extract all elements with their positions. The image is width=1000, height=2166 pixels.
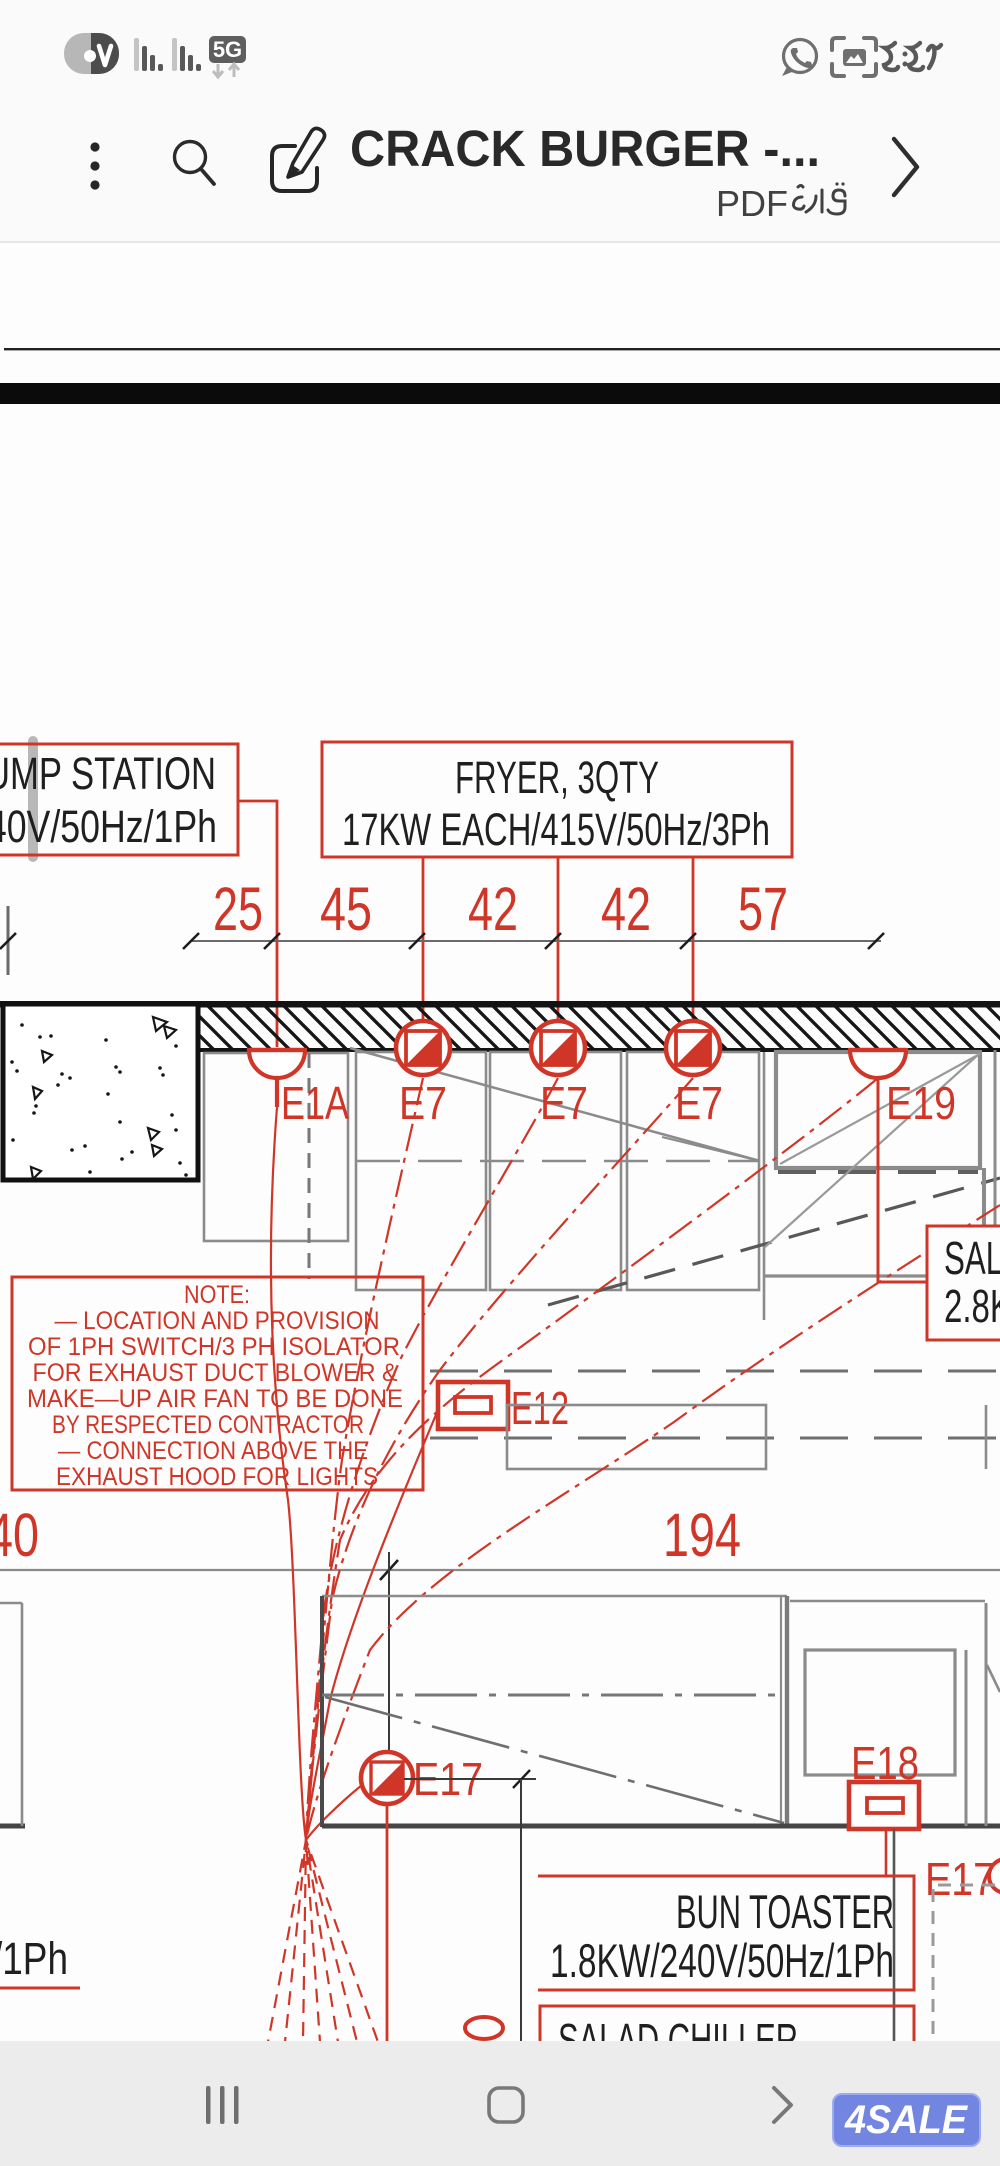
svg-text:NOTE:: NOTE:: [184, 1281, 250, 1309]
svg-text:E19: E19: [886, 1077, 956, 1129]
svg-text:FRYER, 3QTY: FRYER, 3QTY: [455, 752, 659, 803]
svg-text:57: 57: [738, 875, 788, 943]
svg-text:— CONNECTION ABOVE THE: — CONNECTION ABOVE THE: [58, 1437, 368, 1465]
svg-text:SALA: SALA: [944, 1232, 1000, 1284]
svg-text:E7: E7: [399, 1077, 447, 1129]
svg-text:/1Ph: /1Ph: [0, 1933, 68, 1984]
svg-text:E1A: E1A: [281, 1077, 349, 1129]
svg-text:E17: E17: [925, 1853, 995, 1905]
svg-text:42: 42: [468, 875, 518, 943]
svg-text:1.8KW/240V/50Hz/1Ph: 1.8KW/240V/50Hz/1Ph: [550, 1934, 894, 1987]
svg-text:CRACK BURGER -...: CRACK BURGER -...: [350, 120, 820, 177]
svg-text:— LOCATION AND PROVISION: — LOCATION AND PROVISION: [55, 1307, 380, 1335]
svg-text:2.8KV: 2.8KV: [944, 1280, 1000, 1332]
svg-text:17KW EACH/415V/50Hz/3Ph: 17KW EACH/415V/50Hz/3Ph: [342, 804, 770, 855]
svg-text:EXHAUST HOOD FOR LIGHTS: EXHAUST HOOD FOR LIGHTS: [56, 1463, 378, 1491]
svg-text:BY RESPECTED CONTRACTOR: BY RESPECTED CONTRACTOR: [52, 1411, 364, 1439]
svg-text:25: 25: [213, 875, 263, 943]
svg-text:40: 40: [0, 1501, 39, 1569]
svg-text:PDF: PDF: [716, 183, 788, 224]
svg-text:45: 45: [320, 875, 372, 943]
svg-text:4SALE: 4SALE: [844, 2098, 968, 2142]
svg-text:MAKE—UP AIR FAN TO BE DONE: MAKE—UP AIR FAN TO BE DONE: [27, 1385, 403, 1413]
svg-text:42: 42: [601, 875, 651, 943]
svg-text:240V/50Hz/1Ph: 240V/50Hz/1Ph: [0, 801, 217, 852]
svg-text:194: 194: [663, 1501, 741, 1569]
svg-text:E12: E12: [511, 1382, 569, 1434]
svg-text:OF 1PH SWITCH/3 PH ISOLATOR: OF 1PH SWITCH/3 PH ISOLATOR: [28, 1333, 400, 1361]
svg-text:5G: 5G: [213, 37, 242, 62]
svg-text:E18: E18: [851, 1737, 919, 1789]
svg-text:DUMP STATION: DUMP STATION: [0, 748, 216, 799]
svg-text:E7: E7: [540, 1077, 588, 1129]
svg-text:FOR EXHAUST DUCT BLOWER &: FOR EXHAUST DUCT BLOWER &: [33, 1359, 398, 1387]
svg-text:BUN TOASTER: BUN TOASTER: [676, 1885, 894, 1938]
svg-text:E7: E7: [675, 1077, 723, 1129]
